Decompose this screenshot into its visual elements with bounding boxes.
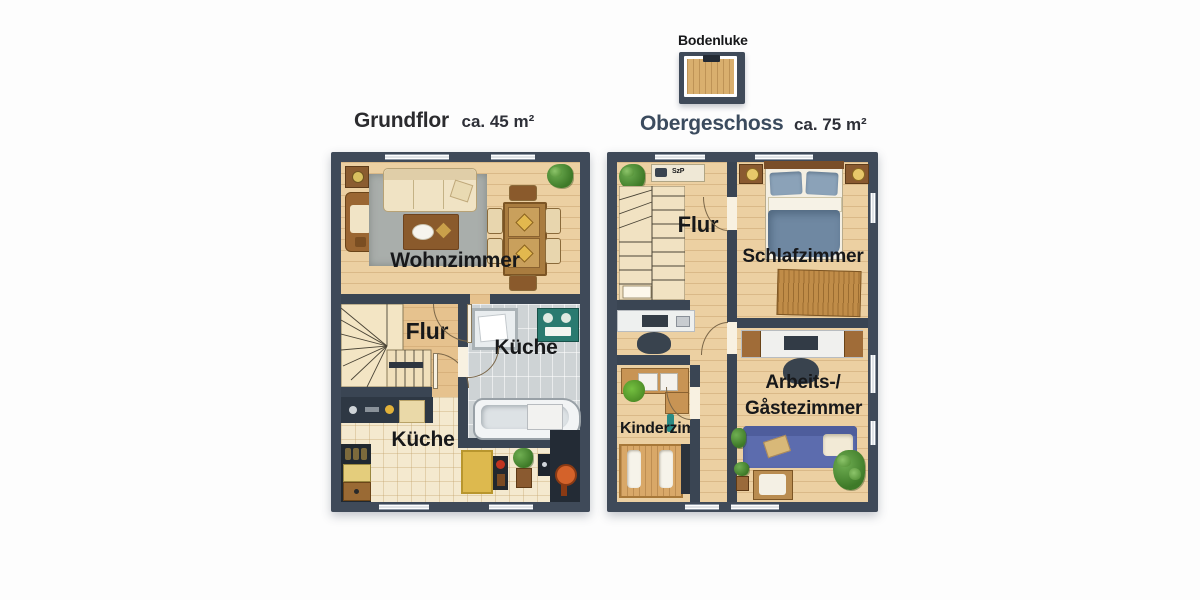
- wall: [341, 387, 432, 397]
- window: [731, 504, 779, 510]
- dining-decor: [515, 213, 533, 231]
- coffee-table-decor: [436, 223, 452, 239]
- lower-cabinet: [343, 482, 371, 501]
- office-label-line1: Arbeits-/: [745, 372, 861, 394]
- book: [763, 435, 791, 459]
- wall: [490, 294, 580, 304]
- wall: [341, 294, 470, 304]
- sofa-seam: [443, 180, 444, 209]
- living-room-label: Wohnzimmer: [375, 249, 535, 273]
- counter-item: [385, 405, 394, 414]
- window: [491, 154, 535, 160]
- upper-floor-area-text: ca. 75 m²: [794, 115, 867, 134]
- staircase: [341, 304, 433, 387]
- nightstand: [739, 164, 763, 184]
- dining-chair: [487, 208, 503, 234]
- pot: [516, 468, 532, 488]
- kids-room-label: Kinderzimmer: [620, 420, 690, 438]
- floorplan-canvas: Bodenluke Grundflor ca. 45 m² Obergescho…: [0, 0, 1200, 600]
- dining-chair: [545, 238, 561, 264]
- attic-hatch-label: Bodenluke: [678, 32, 744, 48]
- office-desk: [741, 330, 863, 358]
- tomato-plant: [496, 460, 505, 469]
- armchair-cushion: [350, 205, 371, 233]
- pillow: [627, 450, 641, 488]
- door-leaf: [467, 304, 472, 343]
- window: [755, 154, 813, 160]
- plant-stand: [493, 456, 508, 490]
- pillow: [805, 171, 838, 196]
- coffee-table: [403, 214, 459, 250]
- potted-plant: [733, 462, 750, 490]
- sofa-back: [384, 169, 476, 180]
- shelf-item: [655, 168, 667, 177]
- kitchen-table: [461, 450, 493, 494]
- window: [655, 154, 705, 160]
- pan-handle: [561, 484, 567, 496]
- bush-plant: [833, 450, 865, 490]
- hall-desk: [617, 310, 695, 332]
- dining-chair: [509, 275, 537, 291]
- bottle: [361, 448, 367, 460]
- dining-table-panel: [508, 207, 540, 237]
- wall-shelf: SzP: [651, 164, 705, 182]
- upper-floor-title: Obergeschoss ca. 75 m²: [640, 112, 867, 136]
- wall: [617, 355, 690, 365]
- shelf-label: SzP: [672, 168, 684, 175]
- counter-item: [365, 407, 379, 412]
- window: [870, 355, 876, 393]
- attic-hatch: [679, 52, 745, 104]
- window: [385, 154, 449, 160]
- small-pot: [497, 474, 505, 486]
- ground-floor-title-text: Grundflor: [354, 109, 449, 132]
- wall: [737, 318, 868, 328]
- dining-chair: [545, 208, 561, 234]
- stove-counter: [550, 430, 580, 502]
- sofa-pillow: [450, 180, 474, 203]
- kitchen-counter: [341, 397, 433, 423]
- bottle: [345, 448, 351, 460]
- wall: [617, 300, 690, 310]
- door-opening: [727, 197, 737, 230]
- window: [870, 193, 876, 223]
- attic-hatch-wood: [687, 59, 734, 94]
- wall: [727, 162, 737, 197]
- drawer: [343, 464, 371, 482]
- desk-chair: [637, 332, 671, 354]
- pillow: [769, 171, 802, 196]
- upper-floor-title-text: Obergeschoss: [640, 112, 784, 135]
- door-opening: [690, 387, 700, 419]
- window: [379, 504, 429, 510]
- ottoman-cushion: [759, 474, 786, 495]
- dining-chair: [509, 185, 537, 201]
- ground-floor-title: Grundflor ca. 45 m²: [354, 109, 534, 133]
- desk-item: [676, 316, 690, 327]
- ottoman: [753, 470, 793, 500]
- lamp: [852, 168, 865, 181]
- window: [870, 421, 876, 445]
- door-opening: [727, 322, 737, 354]
- plant: [731, 428, 746, 448]
- desk-cabinet: [742, 331, 761, 357]
- dishwasher: [527, 404, 563, 430]
- ground-floor-plan: Wohnzimmer Küche: [331, 152, 590, 512]
- bath-cabinet-dial: [543, 313, 553, 323]
- plant: [547, 164, 573, 188]
- cabinet-clock: [352, 171, 364, 183]
- door-opening: [458, 347, 468, 377]
- cabinet: [345, 166, 369, 188]
- wardrobe: [681, 444, 690, 494]
- kids-bed: [619, 444, 683, 498]
- pillow: [659, 450, 673, 488]
- bath-cabinet-panel: [545, 327, 571, 336]
- monitor: [784, 336, 818, 350]
- sofa: [383, 168, 477, 212]
- desk-cabinet: [844, 331, 863, 357]
- attic-hatch-handle: [703, 55, 720, 62]
- armchair-footrest: [355, 237, 366, 247]
- kitchen-appliance-stack: [341, 444, 371, 502]
- knob: [354, 489, 359, 494]
- kitchen-sink: [349, 406, 357, 414]
- dresser: [776, 269, 861, 317]
- upper-floor-plan: SzP Flur: [607, 152, 878, 512]
- office-label-line2: Gåstezimmer: [745, 398, 861, 420]
- sofa-seam: [413, 180, 414, 209]
- nightstand: [845, 164, 869, 184]
- coffee-table-dish: [412, 224, 434, 240]
- bath-cabinet-dial: [561, 313, 571, 323]
- potted-plant: [512, 448, 534, 490]
- wall: [727, 230, 737, 322]
- headboard: [764, 161, 844, 169]
- window: [685, 504, 719, 510]
- wall: [690, 365, 700, 387]
- monitor: [642, 315, 668, 327]
- pan: [555, 464, 577, 486]
- kitchen-label: Küche: [373, 428, 473, 452]
- lamp: [746, 168, 759, 181]
- door-leaf: [433, 353, 438, 389]
- wall: [690, 419, 700, 502]
- bedroom-label: Schlafzimmer: [739, 246, 867, 268]
- cutting-board: [399, 400, 425, 423]
- staircase: [619, 186, 685, 300]
- bottle: [353, 448, 359, 460]
- ground-floor-area-text: ca. 45 m²: [461, 112, 534, 131]
- window: [489, 504, 533, 510]
